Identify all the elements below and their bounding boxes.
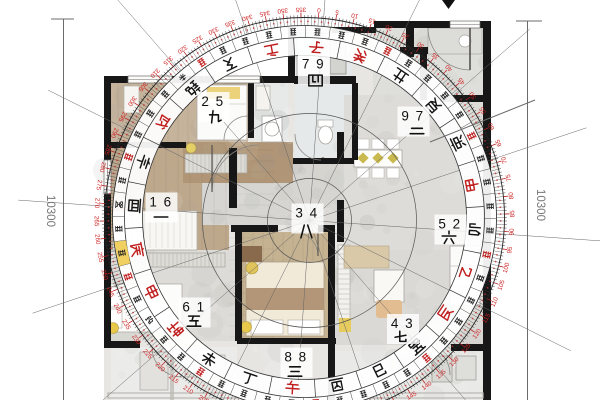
svg-text:100: 100 <box>502 261 511 273</box>
svg-text:255: 255 <box>96 251 105 263</box>
svg-text:6 1: 6 1 <box>182 300 205 315</box>
svg-text:105: 105 <box>496 279 506 292</box>
svg-text:350: 350 <box>277 6 289 14</box>
svg-text:65: 65 <box>494 138 503 148</box>
svg-text:80: 80 <box>508 191 516 199</box>
svg-text:320: 320 <box>175 43 188 55</box>
svg-text:355: 355 <box>295 6 306 13</box>
svg-text:2 5: 2 5 <box>201 94 224 109</box>
svg-text:1 6: 1 6 <box>149 195 172 210</box>
svg-text:10300: 10300 <box>534 189 546 221</box>
svg-text:270: 270 <box>93 198 101 209</box>
svg-text:275: 275 <box>94 179 103 191</box>
svg-text:335: 335 <box>223 18 236 28</box>
svg-text:3 4: 3 4 <box>295 206 318 221</box>
svg-text:0: 0 <box>317 6 321 13</box>
svg-text:75: 75 <box>505 173 513 182</box>
svg-text:10: 10 <box>350 11 359 20</box>
svg-text:325: 325 <box>190 33 203 45</box>
svg-text:7 9: 7 9 <box>302 57 325 72</box>
svg-text:110: 110 <box>490 296 501 308</box>
svg-text:260: 260 <box>93 234 101 246</box>
svg-text:265: 265 <box>93 216 100 227</box>
svg-text:345: 345 <box>258 9 270 18</box>
svg-text:8 8: 8 8 <box>284 350 307 365</box>
svg-text:95: 95 <box>506 246 514 255</box>
svg-text:15: 15 <box>367 16 376 25</box>
svg-text:330: 330 <box>207 25 220 36</box>
svg-text:70: 70 <box>500 155 509 164</box>
svg-text:9 7: 9 7 <box>401 109 424 124</box>
svg-text:10300: 10300 <box>44 195 56 227</box>
svg-text:4 3: 4 3 <box>391 316 414 331</box>
svg-text:5 2: 5 2 <box>438 217 461 232</box>
svg-text:85: 85 <box>509 210 516 218</box>
svg-text:5: 5 <box>334 8 339 16</box>
svg-text:90: 90 <box>509 228 517 236</box>
